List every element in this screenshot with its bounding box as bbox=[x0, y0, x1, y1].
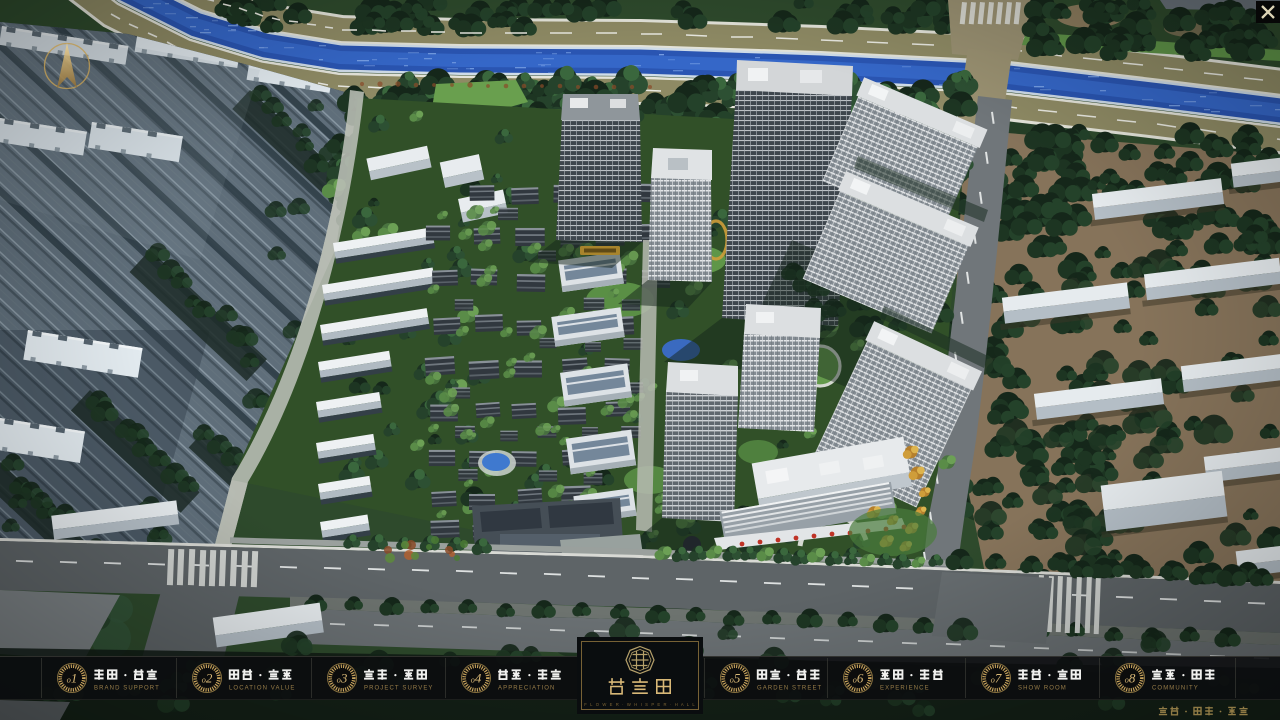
svg-text:GARDEN STREET: GARDEN STREET bbox=[757, 686, 822, 692]
svg-text:F L O W E R · W H I S P E R ·: F L O W E R · W H I S P E R · H A L L bbox=[584, 702, 696, 707]
svg-text:LOCATION VALUE: LOCATION VALUE bbox=[229, 686, 296, 692]
svg-text:SHOW ROOM: SHOW ROOM bbox=[1018, 686, 1067, 692]
svg-text:EXPERIENCE: EXPERIENCE bbox=[880, 686, 930, 692]
svg-text:PROJECT SURVEY: PROJECT SURVEY bbox=[364, 686, 434, 692]
svg-text:COMMUNITY: COMMUNITY bbox=[1152, 686, 1199, 692]
svg-text:APPRECIATION: APPRECIATION bbox=[498, 686, 555, 692]
svg-text:BRAND SUPPORT: BRAND SUPPORT bbox=[94, 686, 160, 692]
